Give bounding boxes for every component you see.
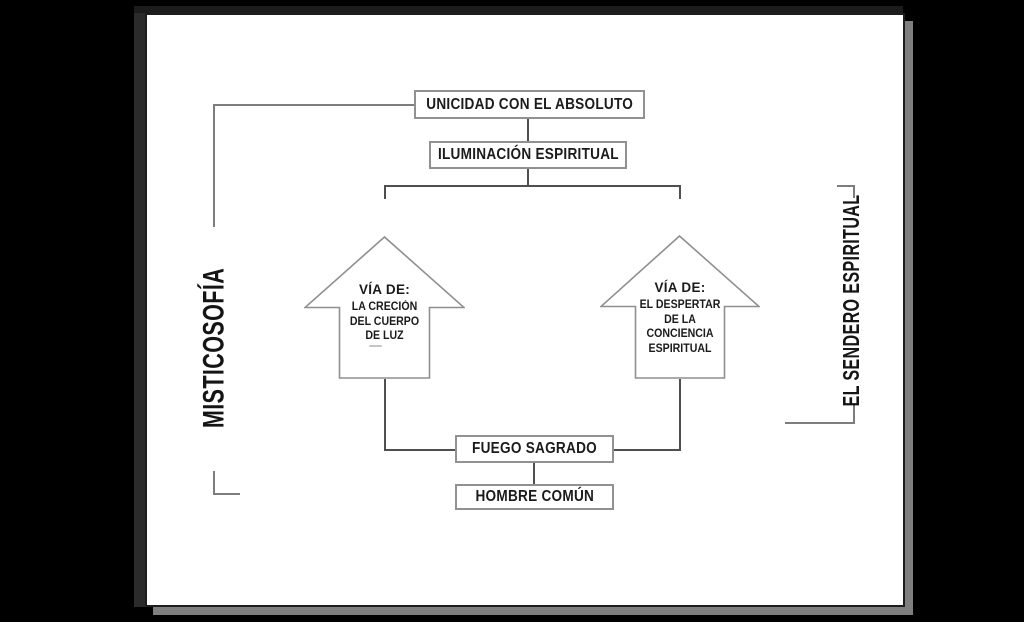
right-arrow-heading: VÍA DE: — [600, 280, 760, 295]
box-unicidad-con-el-absoluto: UNICIDAD CON EL ABSOLUTO — [414, 90, 645, 119]
left-side-title: MISTICOSOFÍA — [183, 267, 245, 429]
box-hombre-comun: HOMBRE COMÚN — [455, 484, 614, 510]
right-side-title-text: EL SENDERO ESPIRITUAL — [838, 194, 865, 406]
right-side-title: EL SENDERO ESPIRITUAL — [823, 200, 879, 400]
connector-right-to-fire-box — [613, 449, 681, 451]
connector-right-arrow-down — [679, 379, 681, 451]
left-bracket-bottom-vertical-line — [213, 471, 215, 495]
scanned-page-view: UNICIDAD CON EL ABSOLUTO ILUMINACIÓN ESP… — [0, 0, 1024, 622]
right-arrow-line-4: ESPIRITUAL — [606, 342, 753, 357]
branch-left-stub — [384, 185, 386, 199]
page-left-edge — [134, 6, 145, 607]
left-arrow-heading: VÍA DE: — [304, 282, 465, 297]
tiny-caption-mark — [369, 345, 382, 347]
document-page: UNICIDAD CON EL ABSOLUTO ILUMINACIÓN ESP… — [145, 13, 905, 607]
right-bracket-bottom-horizontal-line — [785, 422, 855, 424]
right-path-arrow: VÍA DE: EL DESPERTAR DE LA CONCIENCIA ES… — [600, 235, 760, 379]
connector-fire-to-man — [533, 463, 535, 484]
connector-left-arrow-down — [384, 379, 386, 451]
branch-horizontal-line — [384, 185, 681, 187]
right-arrow-line-1: EL DESPERTAR — [606, 298, 753, 313]
left-arrow-line-3: DE LUZ — [310, 329, 458, 344]
left-bracket-top-horizontal-line — [213, 104, 414, 106]
left-arrow-line-2: DEL CUERPO — [310, 315, 458, 330]
right-arrow-text: VÍA DE: EL DESPERTAR DE LA CONCIENCIA ES… — [600, 280, 760, 356]
box-fuego-sagrado: FUEGO SAGRADO — [455, 435, 614, 463]
left-arrow-text: VÍA DE: LA CRECIÓN DEL CUERPO DE LUZ — [304, 282, 465, 344]
right-arrow-line-3: CONCIENCIA — [606, 327, 753, 342]
connector-illumination-to-branch — [527, 169, 529, 185]
connector-absolute-to-illumination — [527, 119, 529, 141]
box-label-common-man: HOMBRE COMÚN — [475, 488, 594, 506]
box-label-absolute: UNICIDAD CON EL ABSOLUTO — [426, 96, 633, 114]
left-arrow-line-1: LA CRECIÓN — [310, 300, 458, 315]
box-label-sacred-fire: FUEGO SAGRADO — [472, 440, 597, 458]
right-arrow-line-2: DE LA — [606, 313, 753, 328]
left-bracket-bottom-horizontal-line — [213, 493, 240, 495]
box-iluminacion-espiritual: ILUMINACIÓN ESPIRITUAL — [429, 141, 627, 169]
box-label-illumination: ILUMINACIÓN ESPIRITUAL — [438, 146, 619, 164]
left-path-arrow: VÍA DE: LA CRECIÓN DEL CUERPO DE LUZ — [304, 236, 465, 379]
branch-right-stub — [679, 185, 681, 199]
page-top-edge — [134, 6, 903, 13]
connector-left-to-fire-box — [384, 449, 456, 451]
left-side-title-text: MISTICOSOFÍA — [197, 268, 231, 428]
left-bracket-top-vertical-line — [213, 104, 215, 227]
